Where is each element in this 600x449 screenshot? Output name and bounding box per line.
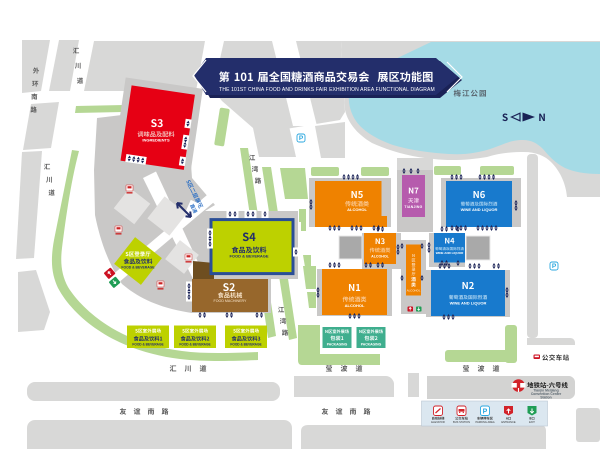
svg-text:FOOD & BEVERAGE: FOOD & BEVERAGE [179,342,210,346]
svg-text:ELEVATOR: ELEVATOR [431,420,445,424]
svg-text:INGREDIENTS: INGREDIENTS [142,138,170,143]
svg-text:FOOD & BEVERAGE: FOOD & BEVERAGE [121,266,155,270]
svg-text:ALCOHOL: ALCOHOL [345,303,365,308]
svg-text:EXIT: EXIT [529,420,535,424]
svg-text:FOOD & BEVERAGE: FOOD & BEVERAGE [229,254,268,259]
svg-text:ENTRANCE: ENTRANCE [501,420,516,424]
svg-text:WINE AND LIQUOR: WINE AND LIQUOR [461,207,498,212]
svg-text:WINE AND LIQUOR: WINE AND LIQUOR [450,301,487,306]
svg-text:TIANJING: TIANJING [404,205,422,209]
svg-text:P: P [552,263,557,270]
svg-text:FOOD & BEVERAGE: FOOD & BEVERAGE [230,342,261,346]
svg-text:FOOD & BEVERAGE: FOOD & BEVERAGE [132,342,163,346]
svg-text:WINE AND LIQUOR: WINE AND LIQUOR [436,251,464,255]
svg-text:PACKAGING: PACKAGING [361,343,382,347]
svg-text:THE 101ST CHINA FOOD AND DRINK: THE 101ST CHINA FOOD AND DRINKS FAIR EXH… [219,87,435,93]
svg-text:Station: Station [540,396,552,400]
svg-text:FOOD MACHINERY: FOOD MACHINERY [214,299,247,303]
svg-text:PARKING AREA: PARKING AREA [475,420,494,424]
svg-text:P: P [483,409,488,416]
svg-text:PACKAGING: PACKAGING [327,343,348,347]
svg-text:BUS STATION: BUS STATION [453,420,470,424]
svg-text:ALCOHOL: ALCOHOL [347,207,367,212]
svg-text:ALCOHOL: ALCOHOL [371,255,390,259]
svg-text:P: P [299,135,304,142]
svg-text:ALCOHOL: ALCOHOL [407,289,421,293]
